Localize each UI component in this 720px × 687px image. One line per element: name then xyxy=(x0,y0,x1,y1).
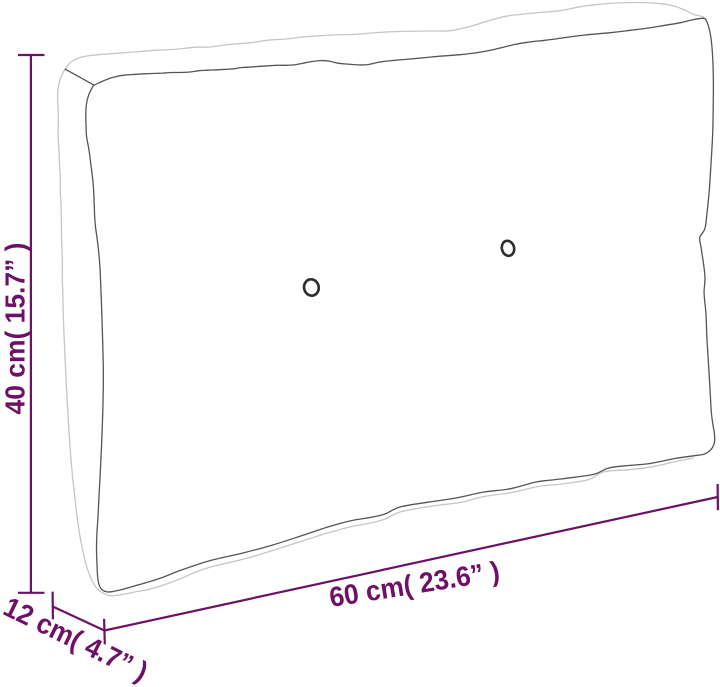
svg-text:12 cm( 4.7” ): 12 cm( 4.7” ) xyxy=(0,591,153,687)
svg-text:40 cm( 15.7” ): 40 cm( 15.7” ) xyxy=(0,243,31,415)
